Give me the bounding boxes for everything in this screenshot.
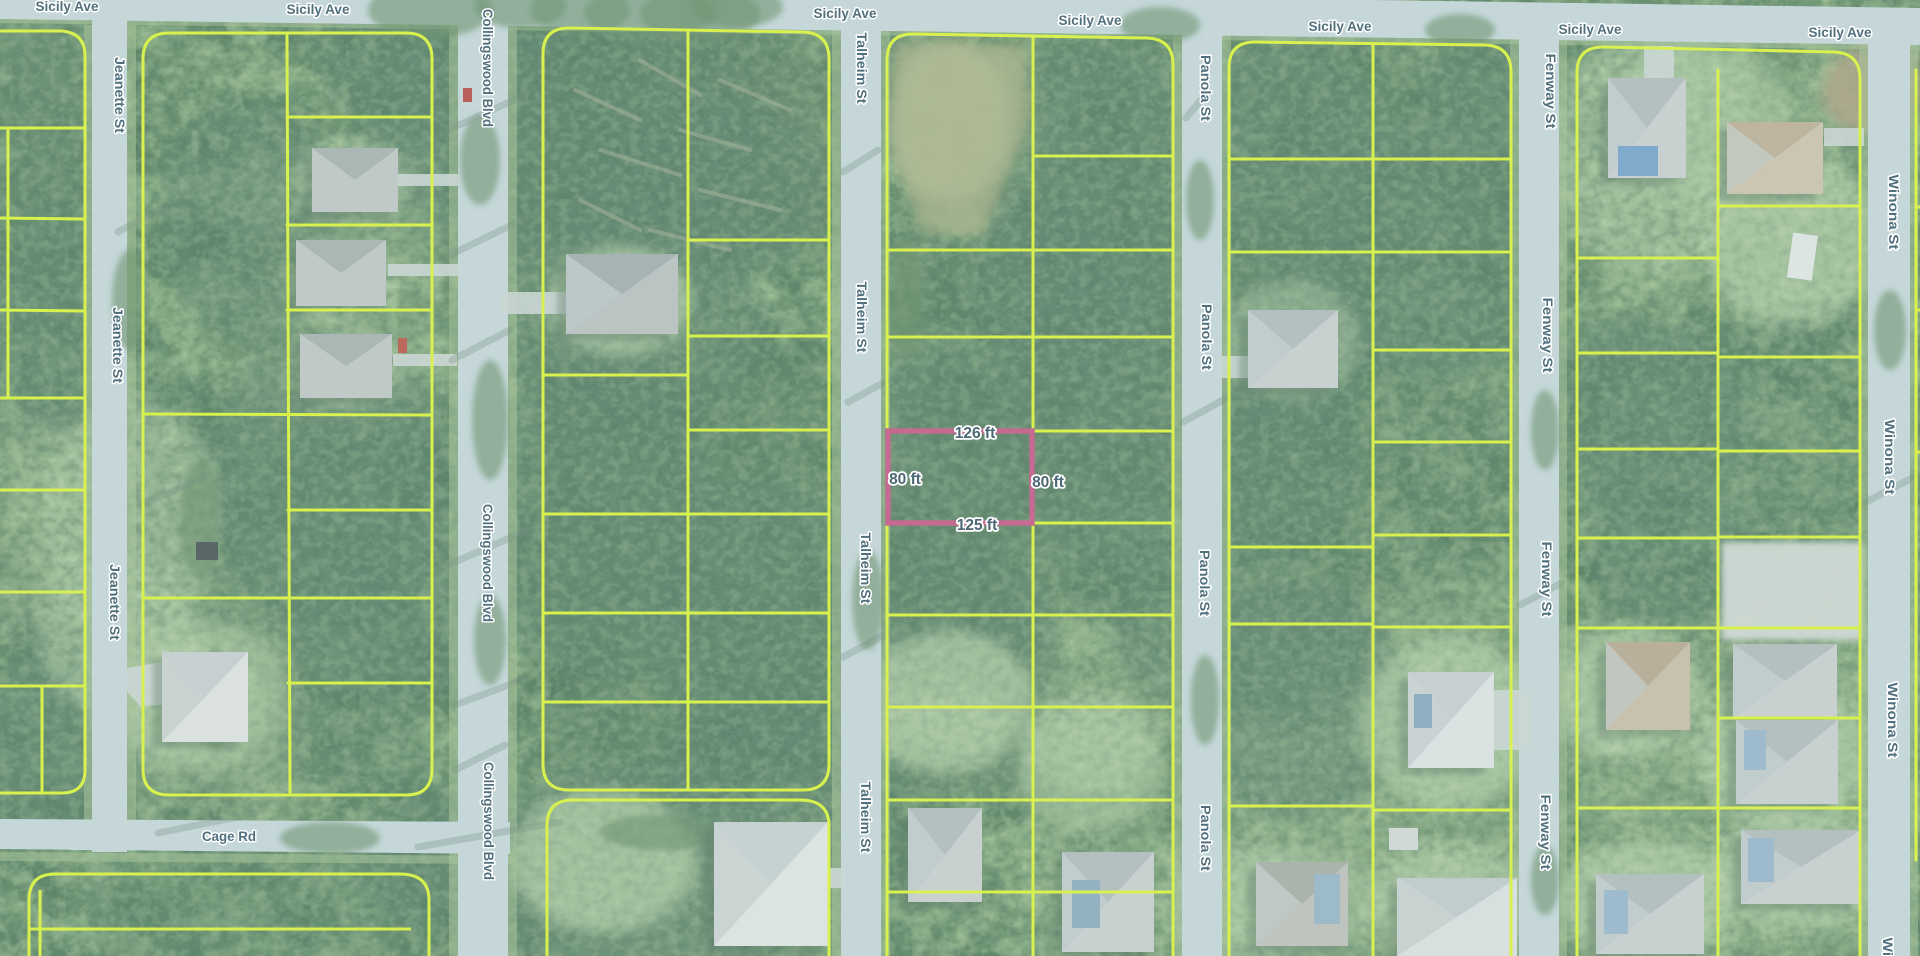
svg-text:Collingswood Blvd: Collingswood Blvd	[481, 762, 497, 880]
svg-text:Winona St: Winona St	[1882, 420, 1898, 495]
svg-text:80 ft: 80 ft	[889, 471, 921, 488]
svg-text:Fenway St: Fenway St	[1540, 298, 1556, 373]
svg-text:Fenway St: Fenway St	[1538, 795, 1554, 870]
svg-text:Sicily Ave: Sicily Ave	[1559, 21, 1622, 37]
svg-text:Talheim St: Talheim St	[858, 533, 874, 604]
svg-text:Sicily Ave: Sicily Ave	[287, 1, 350, 17]
svg-text:Collingswood Blvd: Collingswood Blvd	[480, 504, 496, 622]
svg-text:Jeanette St: Jeanette St	[107, 564, 123, 640]
svg-text:Sicily Ave: Sicily Ave	[814, 5, 877, 21]
svg-text:Sicily Ave: Sicily Ave	[1309, 18, 1372, 34]
svg-text:Talheim St: Talheim St	[854, 282, 870, 353]
svg-text:Talheim St: Talheim St	[858, 782, 874, 853]
svg-text:Panola St: Panola St	[1198, 55, 1214, 121]
svg-text:Talheim St: Talheim St	[854, 33, 870, 104]
svg-text:Jeanette St: Jeanette St	[112, 57, 128, 133]
svg-text:Panola St: Panola St	[1198, 805, 1214, 871]
svg-text:Sicily Ave: Sicily Ave	[1059, 12, 1122, 28]
svg-text:Winona St: Winona St	[1886, 175, 1902, 250]
svg-text:80 ft: 80 ft	[1032, 474, 1064, 491]
svg-text:Panola St: Panola St	[1197, 550, 1213, 616]
svg-text:Winona St: Winona St	[1885, 683, 1901, 758]
svg-text:Fenway St: Fenway St	[1539, 542, 1555, 617]
svg-text:Jeanette St: Jeanette St	[110, 307, 126, 383]
svg-text:126 ft: 126 ft	[955, 425, 996, 442]
svg-text:Fenway St: Fenway St	[1543, 54, 1559, 129]
svg-text:Sicily Ave: Sicily Ave	[1809, 24, 1872, 40]
svg-text:Sicily Ave: Sicily Ave	[36, 0, 99, 14]
svg-text:Cage Rd: Cage Rd	[202, 828, 256, 844]
svg-text:125 ft: 125 ft	[957, 517, 998, 534]
svg-text:Winona St: Winona St	[1880, 938, 1896, 956]
svg-text:Panola St: Panola St	[1199, 304, 1215, 370]
svg-text:Collingswood Blvd: Collingswood Blvd	[480, 9, 496, 127]
